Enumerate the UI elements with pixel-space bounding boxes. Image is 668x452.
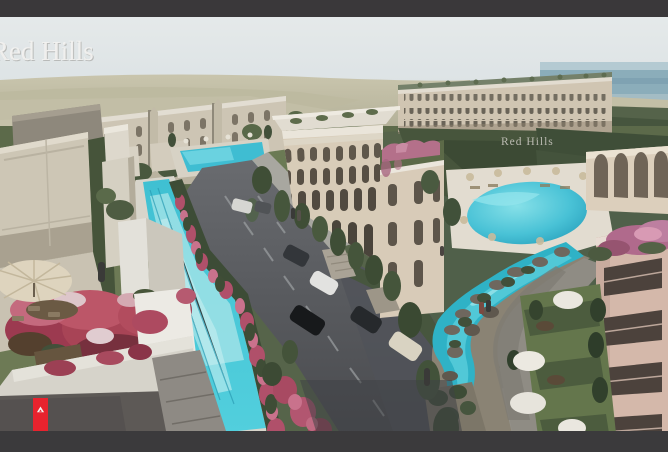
svg-text:Red Hills: Red Hills xyxy=(0,36,94,66)
svg-text:Red Hills: Red Hills xyxy=(501,136,554,148)
